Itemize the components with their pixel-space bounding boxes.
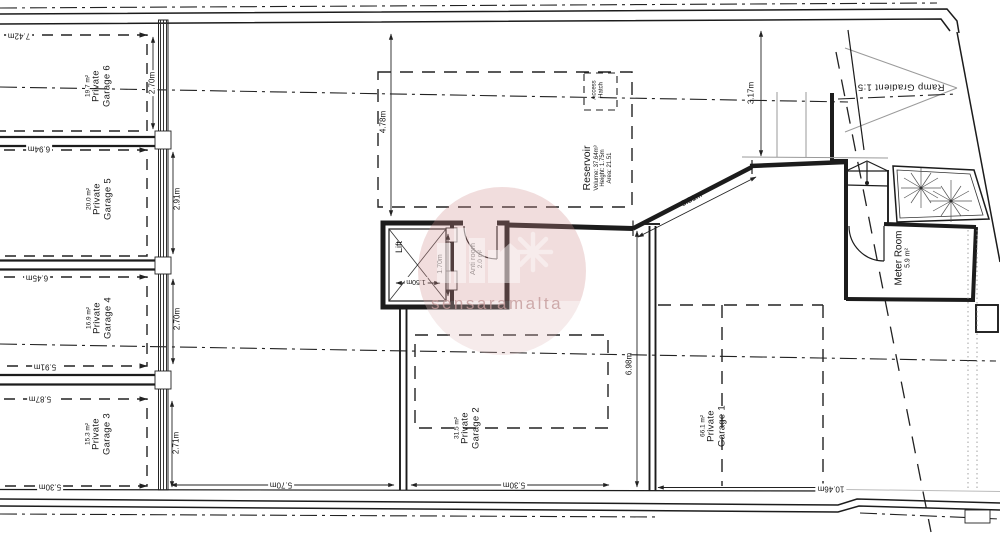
- dim-splayed-wall: 3.31m: [680, 191, 704, 209]
- dim-driveway-depth: 4.78m: [380, 111, 389, 133]
- dim-garage3-depth: 2.71m: [173, 432, 182, 454]
- dim-garage3-width: 5.87m: [27, 394, 53, 403]
- dim-garage4-depth: 2.70m: [174, 308, 183, 330]
- label-lift: Lift: [394, 241, 404, 253]
- dim-garage5-width: 6.94m: [26, 144, 52, 153]
- dim-garage2-depth: 6.98m: [626, 353, 635, 375]
- anti-room-area: 2.0 m²: [478, 243, 485, 275]
- floor-plan-page: 19.7 m² Private Garage 6 20.0 m² Private…: [0, 0, 1000, 550]
- reservoir-area: Area: 21.51: [607, 145, 614, 190]
- dim-left-bay-width: 5.70m: [268, 480, 294, 489]
- label-garage-4: 16.9 m² Private Garage 4: [86, 297, 115, 339]
- reservoir-volume: Volume: 37.64m³: [594, 145, 601, 190]
- label-anti-room: Anti room 2.0 m²: [469, 243, 485, 275]
- label-reservoir: Reservoir Volume: 37.64m³ Height: 1.75m …: [582, 145, 614, 190]
- label-garage-5: 20.0 m² Private Garage 5: [86, 178, 115, 220]
- label-access-hatch: Access Hatch: [591, 80, 604, 99]
- dim-garage2-width: 5.30m: [501, 480, 527, 489]
- dim-garage4-width: 6.45m: [24, 273, 50, 282]
- label-garage-6: 19.7 m² Private Garage 6: [85, 65, 114, 107]
- meter-room-area: 5.9 m²: [905, 230, 913, 285]
- dim-garage1-width: 10.46m: [816, 484, 847, 493]
- dim-lift-width: 1.50m: [404, 277, 427, 285]
- dim-ramp-width: 3.17m: [748, 82, 757, 104]
- dim-garage3-width-bottom: 5.30m: [37, 482, 63, 491]
- label-garage-1: 66.1 m² Private Garage 1: [700, 405, 729, 447]
- dim-garage4-width-bottom: 5.91m: [32, 362, 58, 371]
- label-garage-2: 31.5 m² Private Garage 2: [454, 407, 483, 449]
- reservoir-height: Height: 1.75m: [601, 145, 608, 190]
- dim-lift-depth: 1.70m: [437, 252, 445, 275]
- dim-garage6-width: 7.42m: [6, 31, 32, 40]
- dim-garage5-depth: 2.91m: [174, 188, 183, 210]
- dim-garage6-depth: 2.70m: [149, 70, 158, 96]
- label-garage-3: 15.3 m² Private Garage 3: [85, 413, 114, 455]
- plan-labels: 19.7 m² Private Garage 6 20.0 m² Private…: [0, 0, 1000, 550]
- label-ramp-gradient: Ramp Gradient 1:5: [857, 81, 944, 92]
- label-meter-room: Meter Room 5.9 m²: [893, 230, 912, 285]
